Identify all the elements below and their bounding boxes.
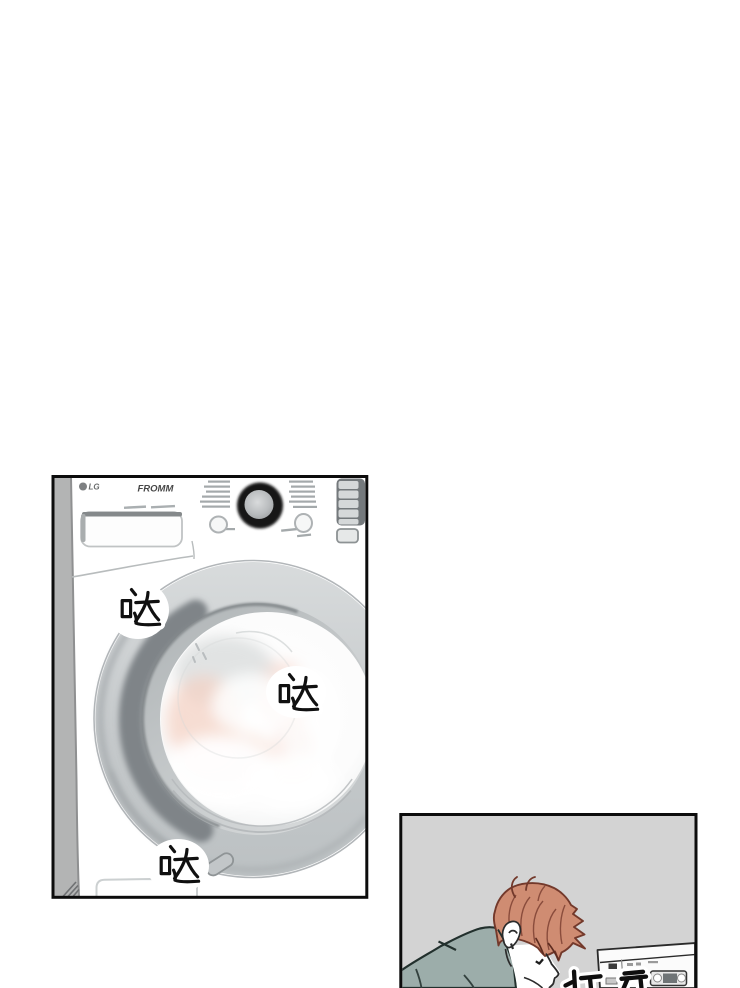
svg-text:FROMM: FROMM: [138, 484, 175, 495]
svg-text:LG: LG: [89, 483, 100, 492]
